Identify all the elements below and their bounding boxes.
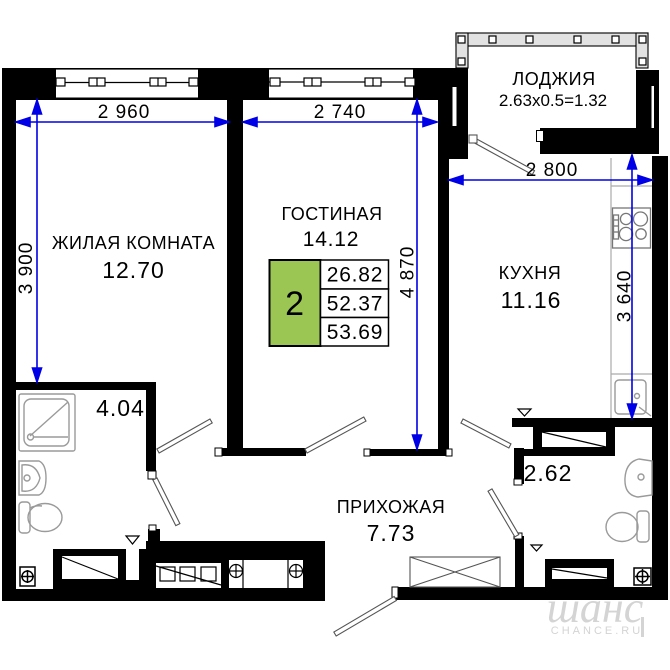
svg-text:ЛОДЖИЯ: ЛОДЖИЯ — [512, 69, 595, 89]
svg-text:2 740: 2 740 — [314, 102, 367, 123]
svg-text:26.82: 26.82 — [327, 264, 384, 287]
svg-text:2: 2 — [285, 285, 305, 323]
svg-text:ПРИХОЖАЯ: ПРИХОЖАЯ — [337, 497, 446, 517]
svg-text:3 900: 3 900 — [16, 242, 37, 295]
svg-text:4 870: 4 870 — [398, 246, 419, 299]
svg-text:2.62: 2.62 — [524, 460, 573, 486]
svg-text:14.12: 14.12 — [303, 228, 360, 251]
svg-text:52.37: 52.37 — [327, 293, 384, 316]
svg-text:4.04: 4.04 — [96, 395, 145, 421]
svg-text:2 800: 2 800 — [526, 160, 579, 181]
svg-text:ГОСТИНАЯ: ГОСТИНАЯ — [281, 204, 382, 224]
svg-text:12.70: 12.70 — [102, 257, 165, 283]
svg-text:ЖИЛАЯ КОМНАТА: ЖИЛАЯ КОМНАТА — [52, 233, 215, 253]
svg-text:3 640: 3 640 — [615, 270, 636, 323]
svg-text:53.69: 53.69 — [327, 321, 384, 344]
svg-text:2 960: 2 960 — [98, 102, 151, 123]
svg-text:2.63х0.5=1.32: 2.63х0.5=1.32 — [499, 91, 607, 110]
svg-text:CHANCE.RU: CHANCE.RU — [551, 625, 643, 637]
svg-text:КУХНЯ: КУХНЯ — [499, 263, 562, 283]
svg-text:11.16: 11.16 — [501, 287, 562, 313]
svg-text:7.73: 7.73 — [367, 520, 416, 546]
